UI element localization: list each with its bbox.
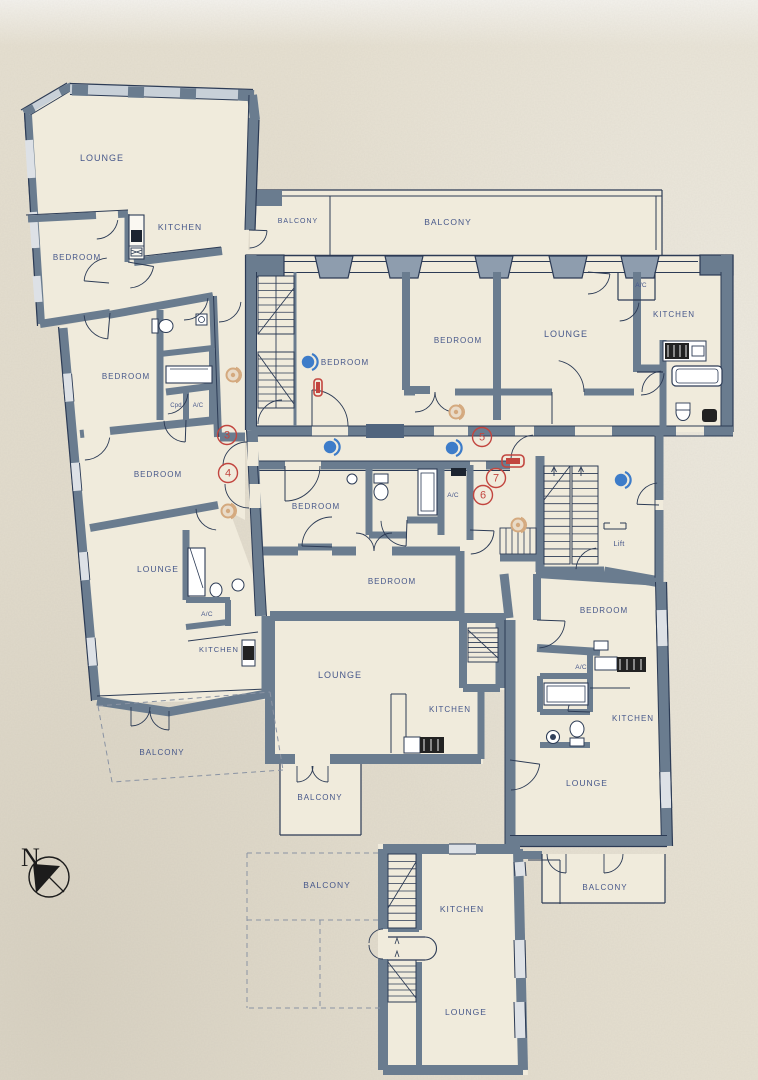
svg-text:BEDROOM: BEDROOM <box>53 253 101 262</box>
svg-text:BEDROOM: BEDROOM <box>321 358 369 367</box>
svg-text:BALCONY: BALCONY <box>278 218 318 225</box>
svg-text:LOUNGE: LOUNGE <box>544 329 588 339</box>
svg-text:BEDROOM: BEDROOM <box>134 470 182 479</box>
svg-text:LOUNGE: LOUNGE <box>137 564 179 574</box>
svg-text:BALCONY: BALCONY <box>582 883 627 892</box>
svg-text:BALCONY: BALCONY <box>424 217 472 227</box>
svg-text:A/C: A/C <box>635 282 647 289</box>
svg-text:BEDROOM: BEDROOM <box>368 577 416 586</box>
svg-text:Lift: Lift <box>613 539 625 548</box>
svg-text:A/C: A/C <box>447 492 459 499</box>
svg-text:BALCONY: BALCONY <box>303 880 351 890</box>
svg-text:KITCHEN: KITCHEN <box>429 705 471 714</box>
svg-text:KITCHEN: KITCHEN <box>653 310 695 319</box>
svg-text:KITCHEN: KITCHEN <box>199 645 239 654</box>
svg-text:3: 3 <box>224 430 230 442</box>
svg-text:LOUNGE: LOUNGE <box>566 778 608 788</box>
svg-text:4: 4 <box>225 468 231 480</box>
svg-text:Cpd: Cpd <box>170 403 182 409</box>
svg-text:BEDROOM: BEDROOM <box>434 336 482 345</box>
svg-text:LOUNGE: LOUNGE <box>445 1007 487 1017</box>
svg-text:5: 5 <box>479 432 485 444</box>
svg-text:LOUNGE: LOUNGE <box>80 153 124 163</box>
svg-text:A/C: A/C <box>201 611 213 618</box>
svg-text:BALCONY: BALCONY <box>139 748 184 757</box>
svg-text:LOUNGE: LOUNGE <box>318 670 362 680</box>
svg-text:7: 7 <box>493 473 499 485</box>
svg-text:BEDROOM: BEDROOM <box>580 606 628 615</box>
svg-text:A/C: A/C <box>575 664 587 671</box>
svg-text:KITCHEN: KITCHEN <box>612 714 654 723</box>
svg-text:BALCONY: BALCONY <box>297 793 342 802</box>
svg-text:6: 6 <box>480 490 486 502</box>
svg-text:KITCHEN: KITCHEN <box>440 904 484 914</box>
svg-text:KITCHEN: KITCHEN <box>158 222 202 232</box>
svg-text:A/C: A/C <box>193 403 204 409</box>
svg-text:BEDROOM: BEDROOM <box>102 372 150 381</box>
svg-text:BEDROOM: BEDROOM <box>292 502 340 511</box>
